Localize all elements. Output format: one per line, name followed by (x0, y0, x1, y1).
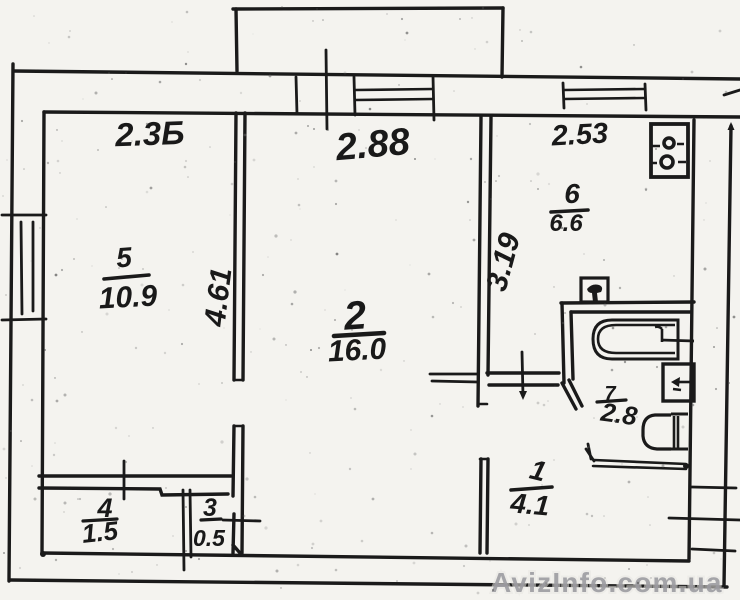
svg-text:2.53: 2.53 (550, 118, 609, 153)
svg-text:5: 5 (115, 241, 133, 273)
svg-text:6: 6 (564, 178, 580, 209)
svg-text:10.9: 10.9 (98, 279, 158, 315)
svg-text:0.5: 0.5 (193, 525, 226, 551)
svg-text:4.1: 4.1 (508, 487, 550, 521)
svg-text:2.3Б: 2.3Б (114, 114, 185, 153)
svg-text:AvizInfo.com.ua: AvizInfo.com.ua (491, 567, 723, 598)
svg-text:2.88: 2.88 (333, 121, 412, 169)
svg-text:6.6: 6.6 (549, 210, 583, 237)
